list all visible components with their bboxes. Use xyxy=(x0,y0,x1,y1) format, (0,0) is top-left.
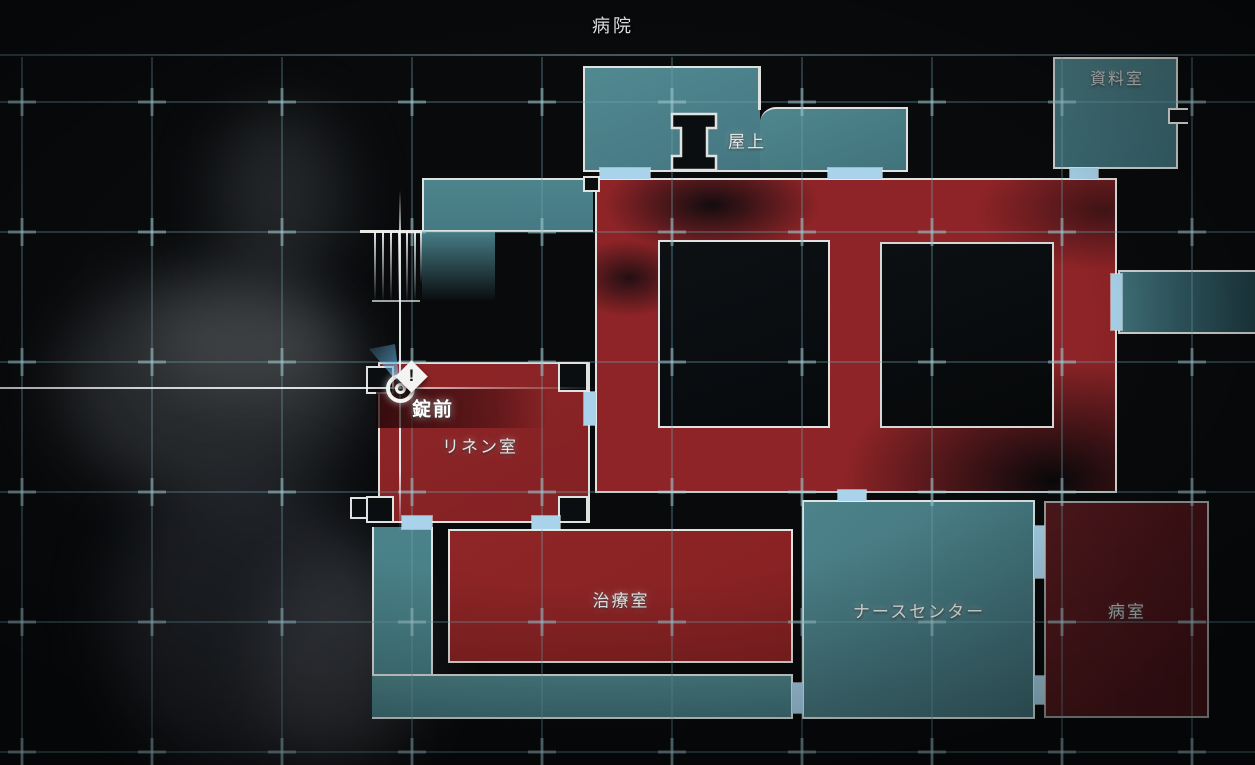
archive-notch xyxy=(1168,108,1188,124)
door-linen-bottom-1 xyxy=(402,516,432,529)
label-linen: リネン室 xyxy=(442,433,518,458)
exclamation-glyph: ! xyxy=(400,364,423,387)
door-corridor-nurse xyxy=(792,683,803,713)
label-treatment: 治療室 xyxy=(593,587,650,612)
ring-courtyard-left xyxy=(658,240,830,428)
door-rooftop-ring-left xyxy=(600,168,650,179)
door-nurse-sickroom-1 xyxy=(1034,526,1044,578)
corridor-ring-notch xyxy=(583,176,600,192)
room-east xyxy=(1118,270,1255,334)
label-archive: 資料室 xyxy=(1090,65,1144,89)
header-divider xyxy=(0,54,1255,56)
corridor-upper-fade xyxy=(422,232,495,302)
page-title: 病院 xyxy=(592,12,634,38)
door-rooftop-ring-right xyxy=(828,168,882,179)
rooftop-step-wall xyxy=(758,66,761,110)
linen-notch-tr xyxy=(558,362,588,392)
corridor-fade-wall xyxy=(420,232,422,284)
game-screen: 病院 xyxy=(0,0,1255,765)
lock-tooltip-label: 錠前 xyxy=(412,394,454,421)
door-ring-nurse xyxy=(838,490,866,501)
door-archive xyxy=(1070,168,1098,179)
map-viewport[interactable]: ! 錠前 屋上 資料室 リネン室 治療室 ナースセンター 病室 xyxy=(0,56,1255,765)
rooftop-stairwell-icon xyxy=(668,108,722,178)
label-nurse-station: ナースセンター xyxy=(853,598,985,623)
linen-notch-bl xyxy=(366,496,394,523)
room-rooftop-right xyxy=(760,107,908,172)
stairs-icon xyxy=(374,232,376,302)
ring-courtyard-right xyxy=(880,242,1054,428)
door-linen-bottom-2 xyxy=(532,516,560,529)
corridor-lower-horizontal xyxy=(372,674,793,719)
door-nurse-sickroom-2 xyxy=(1034,676,1044,704)
label-rooftop: 屋上 xyxy=(728,128,766,153)
door-linen-right xyxy=(584,392,596,425)
door-ring-east-room xyxy=(1111,274,1122,330)
corridor-upper xyxy=(422,178,593,232)
linen-notch-outer xyxy=(350,497,368,519)
linen-notch-br xyxy=(558,496,588,523)
label-sickroom: 病室 xyxy=(1108,598,1146,623)
stairs-bottom-rail xyxy=(372,300,420,302)
